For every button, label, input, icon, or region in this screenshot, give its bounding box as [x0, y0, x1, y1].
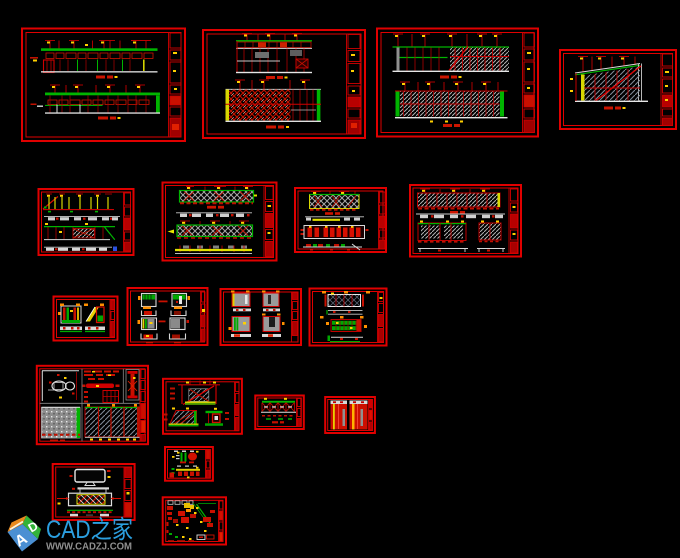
svg-text:WWW.CADZJ.COM: WWW.CADZJ.COM	[46, 541, 132, 553]
